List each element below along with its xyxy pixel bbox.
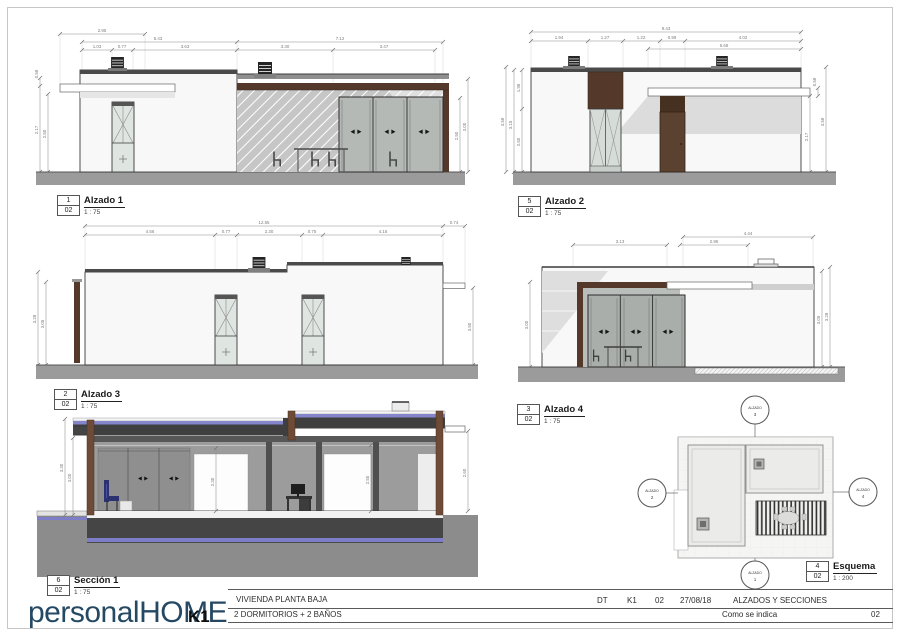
seccion1-section — [37, 402, 478, 577]
doc-code: DT — [597, 596, 608, 605]
doc-date: 27/08/18 — [680, 596, 711, 605]
view-ref-box: 6 02 — [47, 575, 70, 596]
alzado-4-drawing: 4.44 3.13 2.95 3.00 3.05 3.28 — [500, 225, 885, 397]
view-title: Alzado 4 — [544, 404, 585, 417]
view-title: Esquema — [833, 561, 877, 574]
doc-revision: 02 — [655, 596, 664, 605]
chimney — [716, 56, 728, 66]
door — [215, 295, 237, 365]
marker-alzado-1: ALZADO 1 — [741, 561, 769, 589]
seccion-1-drawing: 3.30 3.00 2.30 2.50 2.60 — [28, 398, 498, 585]
dim-label: 1.03 — [93, 44, 102, 49]
dim-label: 2.17 — [804, 132, 809, 141]
view-number: 6 — [48, 576, 69, 586]
dim-label: 3.47 — [380, 44, 389, 49]
titleblock-line — [228, 608, 893, 609]
alzado3-building — [36, 257, 478, 379]
alzado-1-drawing: 2.95 5.43 7.12 1.03 0.77 3.63 3.30 3.47 … — [28, 22, 478, 200]
dim-label: 3.58 — [500, 117, 505, 126]
dim-label: 2.50 — [365, 475, 370, 484]
doc-model: K1 — [627, 596, 637, 605]
partition-wall — [316, 442, 322, 511]
view-sheet: 02 — [518, 415, 539, 424]
dim-label: 3.05 — [816, 315, 821, 324]
dim-label: 2.30 — [265, 229, 274, 234]
ground — [513, 172, 836, 185]
view-label-alzado4: 3 02 Alzado 4 1 : 75 — [517, 404, 585, 425]
dim-label: 5.68 — [720, 43, 729, 48]
view-title: Alzado 2 — [545, 196, 586, 209]
project-title: VIVIENDA PLANTA BAJA — [236, 595, 327, 604]
view-scale: 1 : 75 — [544, 418, 585, 425]
eave-beam — [73, 427, 87, 434]
titleblock-line — [228, 622, 893, 623]
project-program: 2 DORMITORIOS + 2 BAÑOS — [234, 610, 342, 619]
alzado1-building — [36, 57, 465, 185]
floor-insulation — [87, 538, 443, 542]
view-label-alzado3: 2 02 Alzado 3 1 : 75 — [54, 389, 122, 410]
view-number: 5 — [519, 197, 540, 207]
view-title: Alzado 3 — [81, 389, 122, 402]
scale-note: Como se indica — [722, 610, 777, 619]
partition-wall — [373, 442, 379, 511]
dim-label: 2.30 — [210, 477, 215, 486]
canopy-stub — [443, 283, 465, 289]
dim-label: 2.95 — [710, 239, 719, 244]
dim-label: 0.74 — [450, 220, 459, 225]
dim-label: 0.58 — [812, 77, 817, 86]
alzado2-building — [513, 56, 836, 185]
view-ref-box: 3 02 — [517, 404, 540, 425]
dim-label: 1.27 — [601, 35, 610, 40]
dim-label: 3.00 — [524, 320, 529, 329]
view-ref-box: 4 02 — [806, 561, 829, 582]
dim-label: 1.94 — [555, 35, 564, 40]
view-number: 3 — [518, 405, 539, 415]
dim-label: 7.12 — [336, 36, 345, 41]
canopy — [60, 84, 175, 92]
front-door — [660, 96, 685, 172]
pergola-beam — [237, 83, 449, 90]
dim-label: 3.00 — [462, 122, 467, 131]
facade — [85, 265, 443, 365]
view-label-esquema: 4 02 Esquema 1 : 200 — [806, 561, 877, 582]
view-title: Alzado 1 — [84, 195, 125, 208]
chimney — [568, 56, 580, 66]
marker-alzado-3: ALZADO 3 — [741, 396, 769, 424]
dim-label: 3.28 — [32, 314, 37, 323]
view-title: Sección 1 — [74, 575, 120, 588]
wardrobe-sliding-doors — [98, 448, 190, 511]
marker-label: ALZADO — [645, 489, 659, 493]
alzado-3-drawing: 12.55 0.74 4.56 0.77 2.30 0.75 4.16 3.28… — [28, 212, 488, 392]
view-scale: 1 : 75 — [81, 403, 122, 410]
marker-label: ALZADO — [856, 488, 870, 492]
sheet-title: ALZADOS Y SECCIONES — [733, 596, 827, 605]
view-label-alzado2: 5 02 Alzado 2 1 : 75 — [518, 196, 586, 217]
pergola-plan — [756, 501, 826, 535]
dim-label: 0.75 — [308, 229, 317, 234]
wood-post — [288, 411, 295, 440]
marker-alzado-4: ALZADO 4 — [849, 478, 877, 506]
logo-model-suffix: K1 — [188, 607, 210, 627]
dim-label: 9.43 — [662, 26, 671, 31]
dim-label: 3.30 — [59, 463, 64, 472]
dim-label: 3.13 — [616, 239, 625, 244]
opening — [418, 454, 436, 511]
drawing-sheet: 2.95 5.43 7.12 1.03 0.77 3.63 3.30 3.47 … — [0, 0, 900, 636]
alzado-2-drawing: 9.43 1.94 1.27 1.22 0.99 4.02 5.68 3.58 … — [498, 22, 878, 200]
opening — [194, 454, 248, 511]
dim-label: 3.15 — [508, 120, 513, 129]
dim-label: 0.77 — [118, 44, 127, 49]
wood-panel — [588, 72, 623, 109]
alzado4-building — [518, 259, 845, 382]
marker-alzado-2: ALZADO 2 — [638, 479, 666, 507]
marker-label: ALZADO — [748, 571, 762, 575]
dim-label: 2.50 — [516, 137, 521, 146]
partition-wall — [266, 442, 272, 511]
floor-slab — [87, 511, 443, 518]
view-number: 1 — [58, 196, 79, 206]
dim-label: 3.58 — [820, 117, 825, 126]
view-sheet: 02 — [58, 206, 79, 215]
dim-label: 4.44 — [744, 231, 753, 236]
glazed-door — [590, 109, 621, 172]
pergola-beam — [577, 282, 668, 288]
dim-label: 4.16 — [379, 229, 388, 234]
chimney — [253, 257, 266, 268]
dim-label: 12.55 — [259, 220, 271, 225]
view-number: 2 — [55, 390, 76, 400]
view-number: 4 — [807, 562, 828, 572]
dim-label: 2.17 — [34, 125, 39, 134]
chimney — [258, 62, 272, 74]
view-scale: 1 : 200 — [833, 575, 877, 582]
pergola-post — [74, 282, 80, 363]
sliding-glass-doors — [588, 295, 685, 367]
canopy-shadow — [616, 96, 801, 134]
dim-label: 2.60 — [462, 468, 467, 477]
door — [302, 295, 324, 365]
view-scale: 1 : 75 — [84, 209, 125, 216]
marker-label: ALZADO — [748, 406, 762, 410]
ground — [36, 172, 465, 185]
dim-label: 0.99 — [668, 35, 677, 40]
dim-label: 4.02 — [739, 35, 748, 40]
view-sheet: 02 — [48, 586, 69, 595]
view-scale: 1 : 75 — [74, 589, 120, 596]
entry-door — [112, 102, 134, 172]
roof-chimney — [392, 402, 409, 411]
view-sheet: 02 — [519, 207, 540, 216]
view-scale: 1 : 75 — [545, 210, 586, 217]
canopy — [648, 88, 810, 96]
view-label-alzado1: 1 02 Alzado 1 1 : 75 — [57, 195, 125, 216]
view-sheet: 02 — [807, 572, 828, 581]
esquema-plan — [666, 424, 849, 561]
dim-label: 0.58 — [34, 69, 39, 78]
canopy — [667, 282, 752, 289]
chimney — [111, 57, 124, 68]
dim-label: 1.22 — [637, 35, 646, 40]
dim-label: 5.43 — [154, 36, 163, 41]
canopy-stub — [445, 426, 465, 432]
terrace-notch — [674, 490, 688, 550]
pergola-post — [443, 83, 449, 172]
dim-label: 1.98 — [516, 83, 521, 92]
dim-label: 2.50 — [42, 129, 47, 138]
roof-vent — [401, 257, 410, 265]
titleblock-line — [228, 589, 893, 590]
roof-left — [688, 445, 745, 546]
dim-label: 3.30 — [281, 44, 290, 49]
dim-label: 4.56 — [146, 229, 155, 234]
dim-label: 3.63 — [181, 44, 190, 49]
view-ref-box: 2 02 — [54, 389, 77, 410]
view-label-seccion1: 6 02 Sección 1 1 : 75 — [47, 575, 120, 596]
dim-label: 3.50 — [467, 322, 472, 331]
roof-slab — [73, 411, 445, 436]
view-ref-box: 5 02 — [518, 196, 541, 217]
view-sheet: 02 — [55, 400, 76, 409]
wood-post — [436, 411, 443, 515]
dim-label: 3.28 — [824, 312, 829, 321]
ground — [36, 365, 478, 379]
opening — [324, 454, 371, 511]
roof-right — [746, 445, 823, 493]
view-ref-box: 1 02 — [57, 195, 80, 216]
dim-label: 0.77 — [222, 229, 231, 234]
wood-post — [87, 420, 94, 515]
pergola-post — [577, 282, 583, 367]
dim-label: 2.50 — [454, 131, 459, 140]
dim-label: 3.05 — [40, 319, 45, 328]
sheet-number: 02 — [871, 610, 880, 619]
dim-label: 2.95 — [98, 28, 107, 33]
roof-vent — [754, 259, 778, 267]
dim-label: 3.00 — [67, 473, 72, 482]
